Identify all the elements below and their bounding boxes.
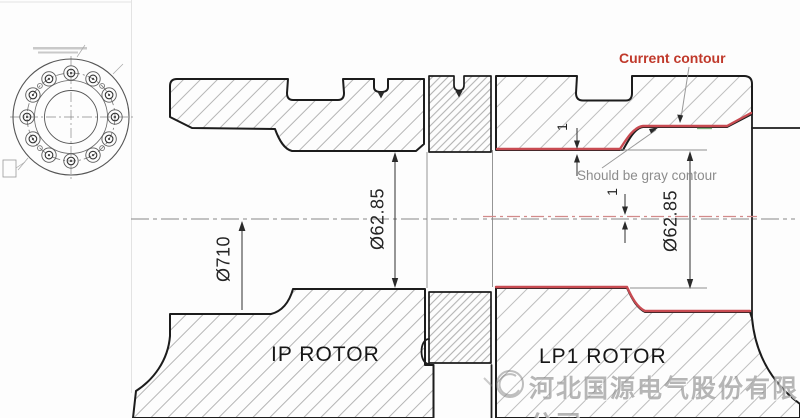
company-watermark: 河北国源电气股份有限公司 (529, 369, 800, 418)
dim-bore-left: Ø62.85 (368, 188, 389, 250)
centerlines (131, 217, 795, 220)
dim-bore-right: Ø62.85 (661, 190, 682, 252)
should-be-gray-annotation: Should be gray contour (577, 168, 717, 183)
inset-annotation-marks (3, 45, 123, 177)
dim-contour-offset: 1 (554, 123, 570, 131)
cad-drawing-canvas: Ø710 Ø62.85 Ø62.85 1 1 Current contour S… (0, 0, 800, 418)
ip-rotor-label: IP ROTOR (271, 343, 380, 367)
dim-centerline-offset: 1 (604, 188, 620, 196)
flange-end-view-inset (3, 45, 133, 180)
lp1-rotor-label: LP1 ROTOR (539, 345, 667, 369)
current-contour-annotation: Current contour (619, 50, 726, 66)
dim-flange-od: Ø710 (214, 236, 235, 282)
